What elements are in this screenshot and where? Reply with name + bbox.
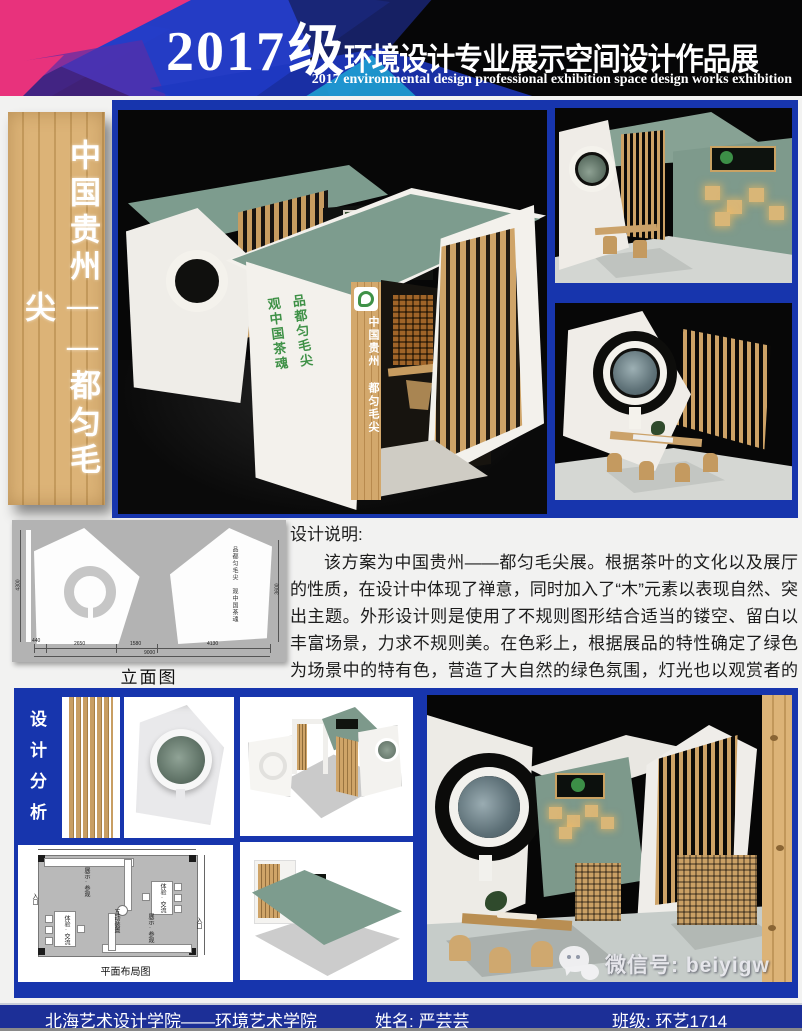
moon-wall [358,725,402,797]
moon-ring-opening [166,250,228,312]
chair [406,380,432,410]
plan-chair [174,883,182,891]
booth-right-slats [430,228,526,463]
wood-lattice-shelf [393,295,433,365]
plan-chair [45,915,53,923]
tv-sign [555,773,605,799]
analysis-label: 设计分析 [24,710,49,834]
display-box [769,206,784,220]
page-subtitle-en: 2017 environmental design professional e… [240,72,792,88]
moon-painting [613,351,657,395]
interior-render-top [555,108,792,283]
plan-label: 展示·参观 [82,867,91,897]
dimension-line [38,849,196,850]
display-box [559,827,572,839]
wood-slats [69,697,113,838]
dim-tick [157,644,158,653]
wood-slats-detail [62,697,120,838]
plan-label: 体验·交流 [62,915,71,945]
chair [633,240,647,258]
dim-label: 9000 [144,650,155,656]
plan-chair [142,893,150,901]
floorplan-caption: 平面布局图 [18,963,233,978]
chair [489,947,511,973]
chair [603,236,617,254]
wood-lattice-shelf [575,863,621,921]
elevation-right-wall [170,528,272,644]
interior-render-wide [427,695,792,982]
pillar-calligraphy: 中国贵州 都匀毛尖 [351,316,381,496]
wood-knot [776,845,784,851]
wood-lattice-counter [677,855,757,925]
chair [531,941,553,967]
bonsai [651,421,665,435]
wood-slat-wall [675,315,779,455]
plan-chair [174,894,182,902]
plan-chair [174,905,182,913]
elevation-ring [64,566,116,618]
plan-label: 体验·交流 [158,883,167,913]
header-banner: 2017 级 环境设计专业展示空间设计作品展 2017 environmenta… [0,0,802,96]
renders-panel: 观中国茶魂 品都匀毛尖 中国贵州 都匀毛尖 [112,100,798,518]
wechat-icon [559,946,599,982]
dim-tick [270,644,271,653]
display-box [567,815,580,827]
dimension-line [34,656,270,657]
dim-label: 440 [32,638,40,644]
display-box [549,807,562,819]
dim-tick [34,644,35,653]
door-frame [292,719,328,774]
dim-label: 2650 [74,641,85,647]
wood-calligraphy-banner: 中国贵州——都匀毛尖 [8,112,105,505]
dim-tick [116,644,117,653]
display-box [749,188,764,202]
keyhole-slot [479,855,492,881]
white-wall [248,735,295,797]
axonometric-render [240,697,413,836]
elevation-wall-text: 品都匀毛尖 观中国茶魂 [230,546,239,624]
chair [607,453,622,472]
description-body: 该方案为中国贵州——都匀毛尖展。根据茶叶的文化以及展厅的性质，在设计中体现了禅意… [290,549,798,711]
tv-sign [336,719,358,729]
plan-label: 入口 [194,917,203,929]
dim-label: 4300 [16,579,22,590]
design-description: 设计说明: 该方案为中国贵州——都匀毛尖展。根据茶叶的文化以及展厅的性质，在设计… [290,518,798,686]
keyhole-slot [629,407,641,429]
roof-view-render [240,842,413,980]
tea-brand-logo [354,287,378,311]
tv-sign [710,146,776,172]
plan-label: 入口 [30,893,39,905]
interior-render-bottom [555,303,792,500]
keyhole-slot [176,789,185,807]
moon-painting [458,776,520,838]
wall-corner [38,948,45,955]
wood-slats [336,736,358,796]
analysis-panel: 设计分析 [14,688,798,998]
wechat-id-text: 微信号: beiyigw [605,949,770,979]
wall-corner [189,855,196,862]
plan-label: 展示·参观 [146,913,155,943]
moon-painting [578,155,606,183]
display-counter [44,858,134,867]
moon-painting [157,736,205,784]
main-exterior-render: 观中国茶魂 品都匀毛尖 中国贵州 都匀毛尖 [118,110,547,514]
dimension-line [204,855,205,955]
partition-wall [124,859,132,911]
display-box [705,186,720,200]
dimension-line [34,648,270,649]
elevation-side-strip [26,530,31,642]
banner-calligraphy-text: 中国贵州——都匀毛尖 [8,122,105,497]
wood-knot [770,735,778,741]
floor-plan: 入口 入口 展示·参观 展示·参观 体验·交流 体验·交流 互动装置 平面布局图 [18,845,233,982]
wechat-watermark: 微信号: beiyigw [559,946,770,982]
poster-page: 2017 级 环境设计专业展示空间设计作品展 2017 environmenta… [0,0,802,1031]
chair [449,935,471,961]
wood-knot [768,925,776,931]
plan-chair [45,937,53,945]
plan-chair [45,926,53,934]
display-box [715,212,730,226]
chair [675,463,690,482]
dim-tick [46,644,47,653]
moon-wall-detail [124,697,234,838]
entrance-wood-pillar: 中国贵州 都匀毛尖 [351,282,381,500]
plan-chair [77,925,85,933]
plan-label: 互动装置 [112,909,121,933]
elevation-caption: 立面图 [12,663,286,688]
footer-bar: 北海艺术设计学院——环境艺术学院 姓名: 严芸芸 班级: 环艺1714 [0,1003,802,1028]
dim-label: 4130 [207,641,218,647]
wood-pillar-frame [762,695,792,982]
wood-slat-screen [621,130,665,240]
description-heading: 设计说明: [290,520,798,545]
dim-label: 1580 [130,641,141,647]
elevation-drawing: 品都匀毛尖 观中国茶魂 440 2650 1580 4130 9000 4300… [12,520,286,662]
display-box [601,817,614,829]
display-box [585,805,598,817]
dim-label: 3600 [275,583,281,594]
chair [703,453,718,472]
chair [639,461,654,480]
